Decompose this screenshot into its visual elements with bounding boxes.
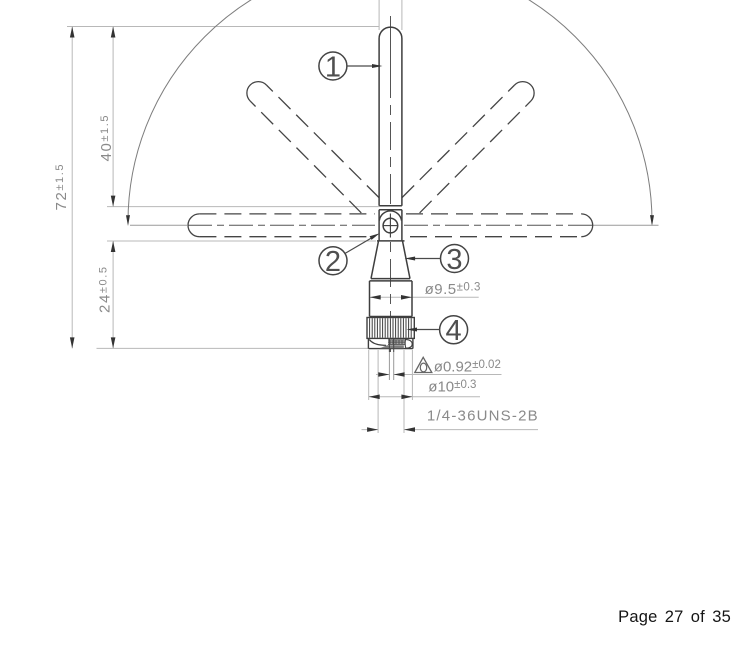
svg-text:4: 4	[446, 315, 462, 347]
svg-text:1: 1	[325, 51, 341, 83]
svg-text:Page 27 of 35: Page 27 of 35	[618, 608, 731, 626]
svg-text:3: 3	[446, 244, 462, 276]
svg-text:2: 2	[325, 246, 341, 278]
svg-text:1/4-36UNS-2B: 1/4-36UNS-2B	[427, 407, 539, 424]
